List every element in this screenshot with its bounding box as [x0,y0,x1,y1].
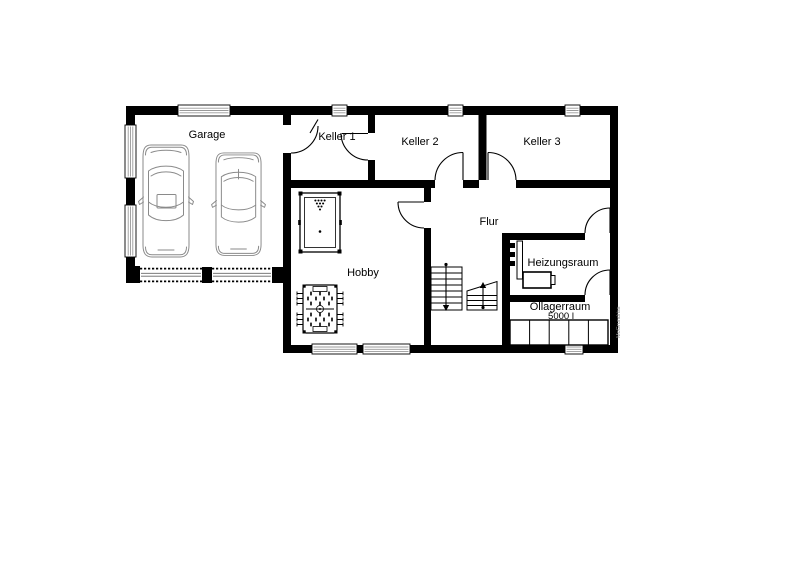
wall-segment [463,180,479,188]
door-swing-icon [585,208,610,233]
wall-segment [479,115,487,180]
window-icon [178,105,230,116]
window-icon [125,125,136,178]
wall-segment [502,233,510,345]
foosball-table-icon [297,285,343,334]
window-icon [332,105,347,116]
heater-control-icon [509,252,515,257]
wall-segment [424,228,431,345]
window-icon [125,205,136,257]
garage-cars [139,145,266,257]
floorplan-svg: Garage Keller 1 Keller 2 Keller 3 Flur H… [0,0,800,565]
wall-segment [283,180,435,188]
window-icon [363,344,410,354]
garage-door-icon [212,269,272,282]
hobby-furniture [297,192,343,334]
wall-segment [424,188,431,202]
wall-segment [502,233,585,240]
door-swing-icon [488,153,516,181]
car-icon [139,145,194,257]
boiler-icon [523,272,551,288]
door-swing-icon [435,153,463,181]
staircase-up-icon [467,282,497,311]
wall-segment [126,266,140,283]
room-label-flur: Flur [480,216,499,228]
pipe-icon [517,241,523,279]
window-icon [312,344,357,354]
wall-segment [202,267,212,283]
heater-control-icon [509,261,515,266]
door-swing-icon [291,120,318,154]
wall-segment [283,106,291,125]
window-icon [448,105,463,116]
room-label-keller1: Keller 1 [318,131,355,143]
billiard-table-icon [298,192,342,254]
oil-tanks-icon [510,320,608,345]
room-label-garage: Garage [189,129,226,141]
room-label-heizungsraum: Heizungsraum [528,257,599,269]
wall-segment [516,180,618,188]
window-icon [565,105,580,116]
sunroof-icon [157,195,176,209]
garage-door-icon [140,269,202,282]
room-label-hobby: Hobby [347,267,379,279]
door-swing-icon [585,270,610,295]
wall-segment [368,115,375,133]
cue-ball-icon [319,230,322,233]
room-label-keller2: Keller 2 [401,136,438,148]
door-swing-icon [398,202,424,228]
floorplan-page: Garage Keller 1 Keller 2 Keller 3 Flur H… [0,0,800,565]
heater-control-icon [509,243,515,248]
boiler-tab-icon [551,276,555,285]
watermark-label: MoGrundriss [616,306,622,338]
wall-segment [368,160,375,180]
stairs [431,263,497,311]
car-icon [212,153,266,255]
staircase-down-icon [431,263,462,311]
room-label-keller3: Keller 3 [523,136,560,148]
tank-capacity-label: 5000 l [548,311,574,322]
